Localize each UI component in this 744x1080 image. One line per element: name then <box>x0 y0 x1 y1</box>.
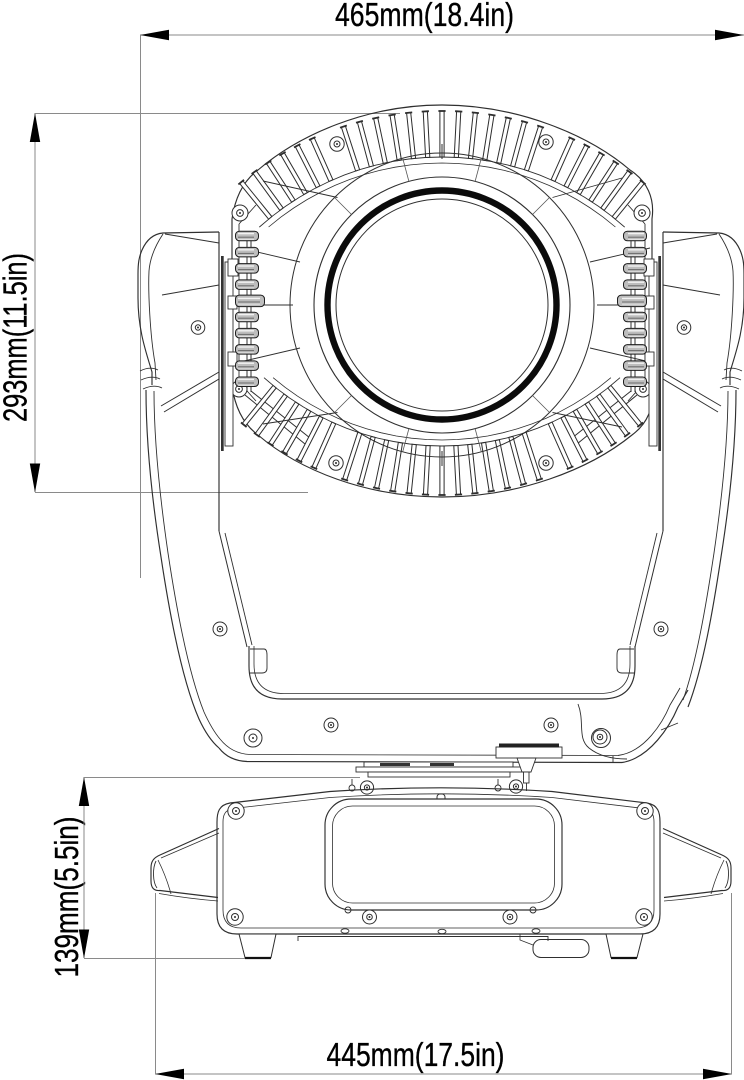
svg-text:139mm(5.5in): 139mm(5.5in) <box>48 817 85 978</box>
svg-text:293mm(11.5in): 293mm(11.5in) <box>0 253 34 422</box>
svg-text:465mm(18.4in): 465mm(18.4in) <box>335 0 514 33</box>
svg-text:445mm(17.5in): 445mm(17.5in) <box>327 1036 505 1073</box>
